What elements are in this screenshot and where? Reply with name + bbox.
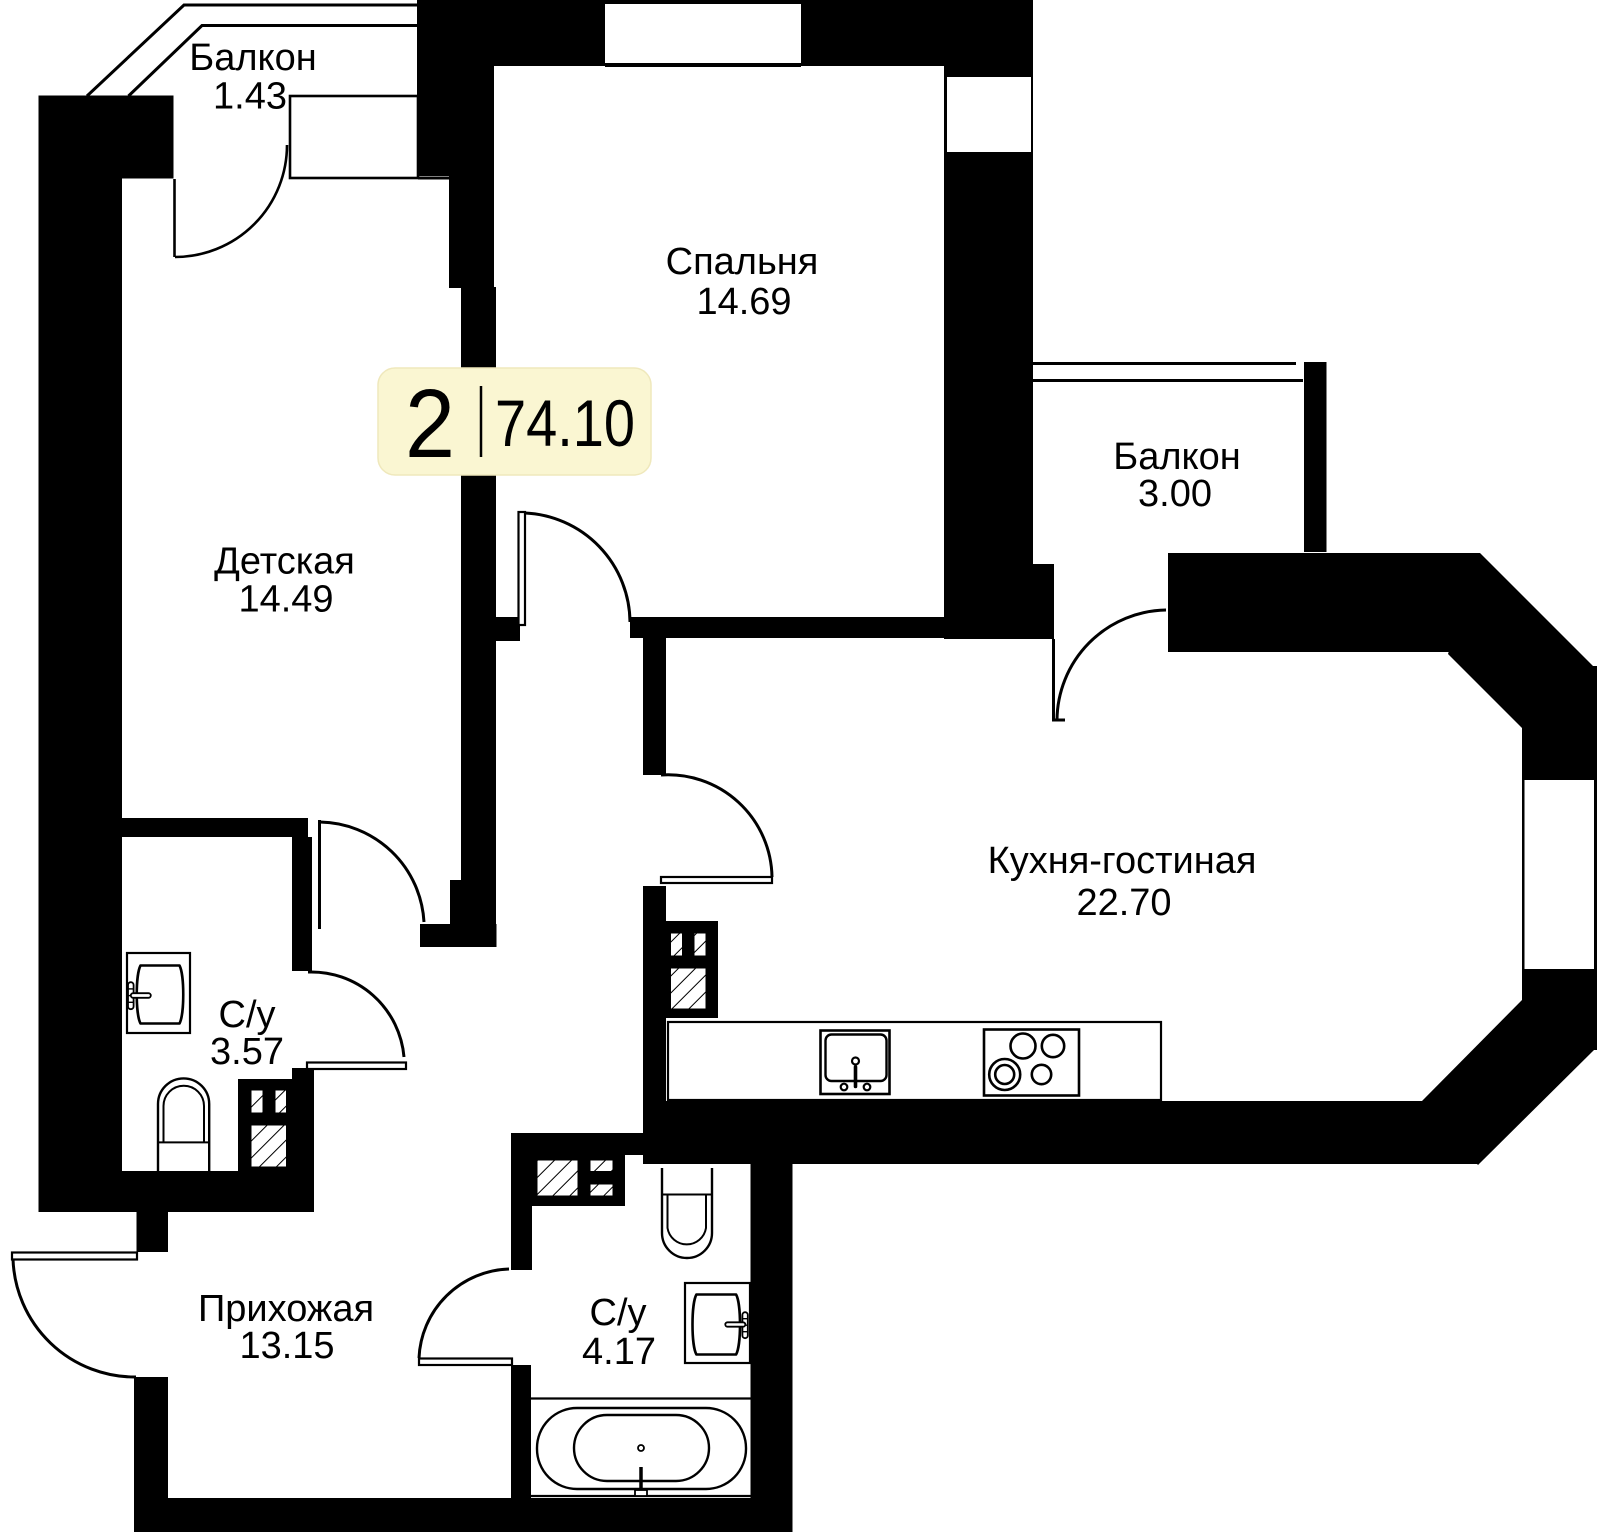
svg-text:4.17: 4.17 [582, 1331, 656, 1373]
svg-text:Балкон: Балкон [189, 37, 316, 79]
svg-text:22.70: 22.70 [1076, 882, 1171, 924]
svg-text:Прихожая: Прихожая [198, 1288, 374, 1330]
svg-text:74.10: 74.10 [495, 386, 635, 460]
svg-text:С/у: С/у [590, 1292, 647, 1334]
svg-text:С/у: С/у [219, 994, 276, 1036]
svg-text:Балкон: Балкон [1113, 436, 1240, 478]
svg-text:3.57: 3.57 [210, 1031, 284, 1073]
svg-text:Кухня-гостиная: Кухня-гостиная [988, 840, 1257, 882]
svg-text:14.49: 14.49 [238, 579, 333, 621]
svg-text:1.43: 1.43 [213, 76, 287, 118]
svg-text:3.00: 3.00 [1138, 473, 1212, 515]
svg-text:14.69: 14.69 [696, 281, 791, 323]
svg-text:2: 2 [405, 369, 455, 478]
svg-text:Спальня: Спальня [666, 241, 819, 283]
svg-text:Детская: Детская [214, 541, 355, 583]
svg-text:13.15: 13.15 [239, 1325, 334, 1367]
